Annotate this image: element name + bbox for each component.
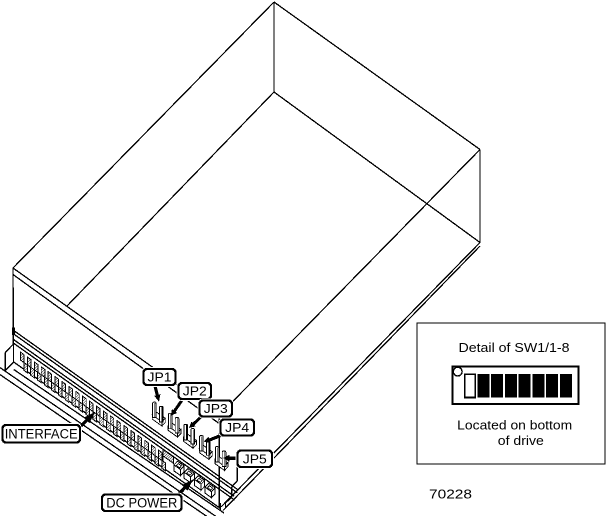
svg-text:DC POWER: DC POWER — [106, 496, 177, 511]
svg-text:JP2: JP2 — [183, 384, 207, 399]
svg-text:JP3: JP3 — [204, 401, 228, 416]
svg-text:70228: 70228 — [429, 487, 472, 502]
svg-text:JP1: JP1 — [148, 370, 172, 385]
svg-text:Detail of SW1/1-8: Detail of SW1/1-8 — [459, 340, 570, 355]
svg-text:INTERFACE: INTERFACE — [5, 427, 78, 442]
svg-text:JP4: JP4 — [225, 420, 249, 435]
svg-text:Located on bottom: Located on bottom — [457, 418, 572, 433]
svg-text:JP5: JP5 — [243, 451, 267, 466]
svg-text:of drive: of drive — [498, 433, 544, 448]
